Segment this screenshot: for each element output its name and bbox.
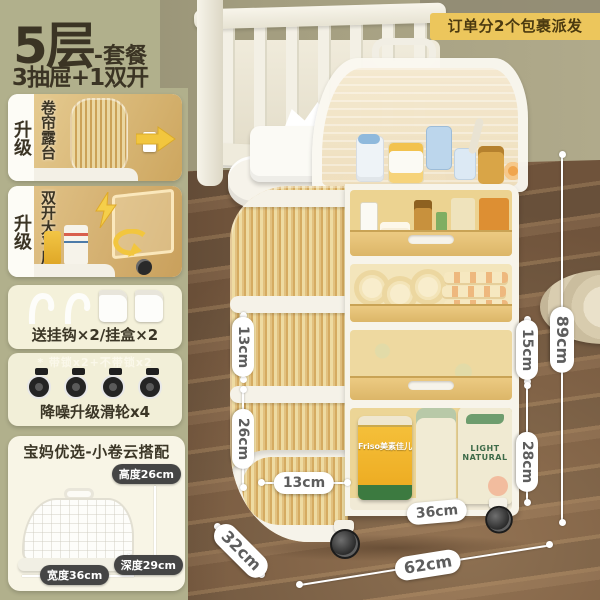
curtain-column-thumb xyxy=(70,98,128,176)
hanging-box-icon xyxy=(135,290,163,322)
measure-26: 26cm xyxy=(232,409,254,469)
bag-text-line2: NATURAL xyxy=(462,453,507,462)
drawer-1-handle xyxy=(408,235,454,244)
measure-dot xyxy=(559,519,566,526)
measure-dot xyxy=(240,386,247,393)
wheels-panel: * 带锁x2+不带锁x2 降噪升级滑轮x4 xyxy=(8,353,182,426)
drawer-stack: Friso美素佳儿 LIGHT NATURAL xyxy=(345,184,519,516)
formula-brand-text: Friso美素佳儿 xyxy=(358,441,412,452)
caster-icon xyxy=(63,368,91,400)
caster-icon xyxy=(26,368,54,400)
shelf-band xyxy=(34,264,115,277)
rolling-curtain-label: 卷帘露台 xyxy=(38,100,59,160)
bottom-shelf: Friso美素佳儿 LIGHT NATURAL xyxy=(350,408,512,510)
drawer-3-front xyxy=(350,376,512,400)
bag-text-line1: LIGHT xyxy=(470,444,499,453)
hook-icon xyxy=(63,290,91,324)
caster-icon xyxy=(100,368,128,400)
product-image: Friso美素佳儿 LIGHT NATURAL 13cm xyxy=(0,0,600,600)
measure-dot xyxy=(240,376,247,383)
milk-jar-stack xyxy=(388,142,424,184)
measure-13-left: 13cm xyxy=(232,317,254,377)
measure-28: 28cm xyxy=(516,432,538,492)
caster-wheel-left xyxy=(330,520,360,560)
upgrade-label: 升级 xyxy=(8,214,34,250)
combo-title: 宝妈优选-小卷云搭配 xyxy=(8,441,185,462)
column-band-mid1 xyxy=(230,296,348,313)
upgrade-strip: 升级 xyxy=(8,94,34,181)
folded-towel xyxy=(444,272,508,285)
arrow-right-icon xyxy=(136,126,176,152)
measure-dot xyxy=(524,382,531,389)
breadbox xyxy=(312,58,528,192)
caster-icon xyxy=(137,368,165,400)
column-band-top xyxy=(230,190,348,207)
crib-corner-post xyxy=(197,0,223,186)
wall-top-shade xyxy=(420,0,600,13)
breadbox-dome xyxy=(322,68,518,186)
measure-15: 15cm xyxy=(516,320,538,380)
measure-dot xyxy=(240,484,247,491)
lightning-icon xyxy=(94,192,118,228)
yellow-jar-thumb xyxy=(44,231,61,265)
bottle-amber xyxy=(478,146,504,184)
shipping-banner: 订单分2个包裹派发 xyxy=(430,13,600,40)
box-width-pill: 宽度36cm xyxy=(40,565,109,585)
gift-panel-hooks: 送挂钩×2/挂盒×2 xyxy=(8,285,182,349)
drawer-1-front xyxy=(350,230,512,256)
bag-leaf-icon xyxy=(466,414,504,424)
diaper-bag-small xyxy=(416,408,456,502)
gift-text: 送挂钩×2/挂盒×2 xyxy=(8,324,182,345)
drawer-1 xyxy=(350,190,512,256)
measure-dot xyxy=(258,479,265,486)
upgrade-label: 升级 xyxy=(8,120,34,156)
bag-peach-icon xyxy=(488,476,508,496)
combo-panel: 宝妈优选-小卷云搭配 高度26cm 宽度36cm 深度29cm xyxy=(8,436,185,591)
pacifier xyxy=(504,162,518,180)
box-height-pill: 高度26cm xyxy=(112,464,181,484)
wheels-text: 降噪升级滑轮x4 xyxy=(8,401,182,422)
height-line xyxy=(154,486,156,558)
bottle-light-blue xyxy=(426,126,452,170)
drawer-3 xyxy=(350,330,512,400)
package-subtitle: 3抽屉+1双开 xyxy=(0,58,160,92)
column-band-mid2 xyxy=(230,386,348,403)
box-depth-pill: 深度29cm xyxy=(114,555,183,575)
formula-can: Friso美素佳儿 xyxy=(358,416,412,500)
shelf-band xyxy=(34,168,138,181)
measure-89: 89cm xyxy=(550,307,574,373)
bottle-cap-blue xyxy=(358,134,380,144)
caster-wheel-right xyxy=(485,498,513,535)
white-pack-thumb xyxy=(64,225,88,265)
feature-panel-rolling-curtain: 升级 卷帘露台 xyxy=(8,94,182,181)
feature-panel-double-open: 升级 双开大平层 xyxy=(8,186,182,277)
measure-dot xyxy=(296,581,303,588)
diaper-bag-large: LIGHT NATURAL xyxy=(458,408,512,504)
towel-roll xyxy=(410,269,446,305)
hanging-box-icon xyxy=(99,290,127,322)
rolling-curtain-photo: 卷帘露台 xyxy=(34,94,182,181)
measure-dot xyxy=(546,541,553,548)
measure-13-width: 13cm xyxy=(274,472,334,494)
can-green-band xyxy=(358,485,412,500)
upgrade-strip: 升级 xyxy=(8,186,34,277)
folded-towel xyxy=(442,286,506,299)
drawer-3-handle xyxy=(408,381,454,390)
measure-dot xyxy=(559,151,566,158)
curved-arrow-icon xyxy=(104,229,148,259)
measure-dot xyxy=(524,499,531,506)
drawer-2-front xyxy=(350,304,512,322)
wheel-thumb xyxy=(136,259,152,275)
combo-box-dome xyxy=(22,498,134,562)
measure-dot xyxy=(344,479,351,486)
hook-icon xyxy=(27,290,55,324)
double-open-photo: 双开大平层 xyxy=(34,186,182,277)
can-lid xyxy=(358,416,412,427)
drawer-2 xyxy=(350,264,512,322)
